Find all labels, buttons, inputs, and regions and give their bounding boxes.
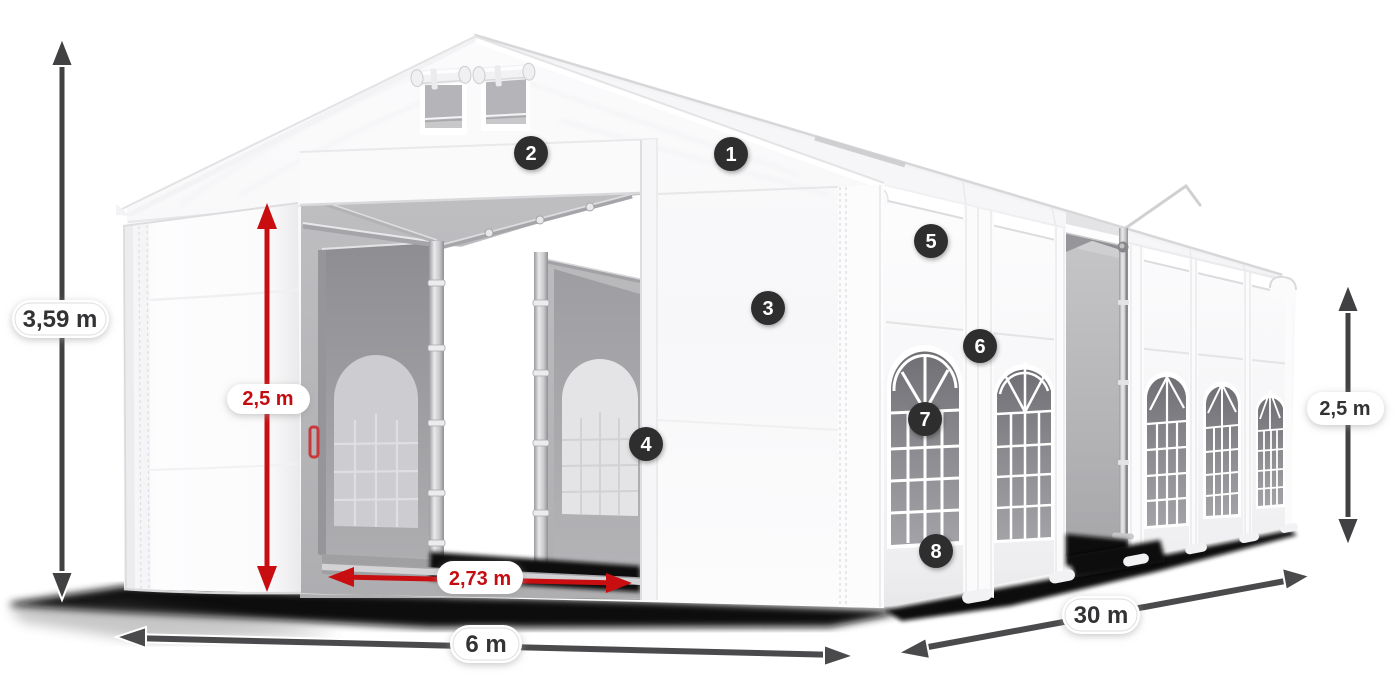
svg-text:8: 8 — [930, 541, 941, 563]
svg-text:2,73 m: 2,73 m — [449, 568, 511, 590]
svg-text:2,5 m: 2,5 m — [242, 388, 293, 410]
svg-text:3,59 m: 3,59 m — [23, 306, 98, 333]
svg-text:2: 2 — [525, 143, 536, 165]
svg-text:7: 7 — [919, 409, 930, 431]
svg-text:30 m: 30 m — [1074, 602, 1129, 629]
svg-text:5: 5 — [925, 231, 936, 253]
svg-text:1: 1 — [725, 144, 736, 166]
svg-text:2,5 m: 2,5 m — [1319, 398, 1370, 420]
svg-text:3: 3 — [762, 298, 773, 320]
svg-text:6 m: 6 m — [465, 631, 506, 658]
svg-text:4: 4 — [640, 434, 652, 456]
svg-text:6: 6 — [974, 336, 985, 358]
